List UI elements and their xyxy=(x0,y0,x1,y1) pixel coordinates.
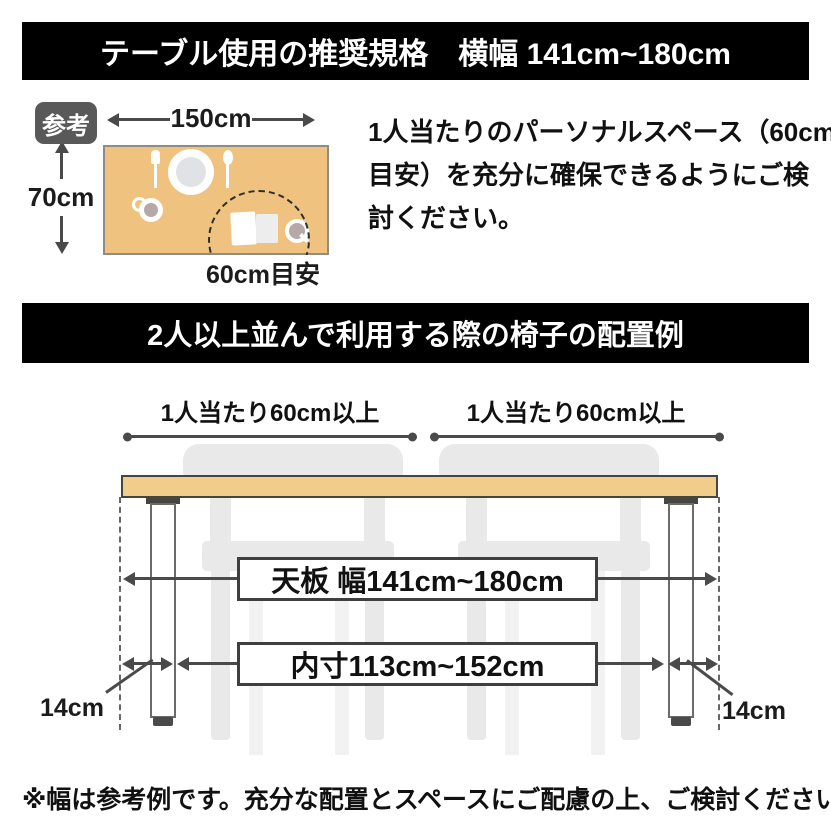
chair-right-back xyxy=(439,444,659,477)
spoon-icon-stem xyxy=(226,163,229,188)
table-edge-dashline-right xyxy=(718,497,720,730)
chair-left-back xyxy=(183,444,403,477)
section2-title: 2人以上並んで利用する際の椅子の配置例 xyxy=(147,312,684,354)
cup-icon-inner xyxy=(144,203,158,217)
inner-width-arrow-left xyxy=(188,662,237,665)
description-line-3: 討ください。 xyxy=(368,198,524,235)
inner-width-arrow-right xyxy=(598,662,653,665)
leg-offset-label-left: 14cm xyxy=(40,694,104,723)
table-edge-dashline-left xyxy=(119,497,121,730)
width-dim-arrow-left xyxy=(118,118,170,121)
personal-space-label: 60cm目安 xyxy=(204,255,322,291)
plate-icon xyxy=(168,149,214,195)
per-person-label-right: 1人当たり60cm以上 xyxy=(433,393,719,428)
chair-left-leg-left xyxy=(211,571,230,740)
table-depth-label: 70cm xyxy=(26,182,96,213)
tabletop-width-arrow-left xyxy=(134,577,237,580)
table-width-label: 150cm xyxy=(168,103,254,134)
chair-right-post-left xyxy=(466,497,487,547)
per-person-dimline-left xyxy=(127,435,413,438)
tabletop-width-box: 天板 幅141cm~180cm xyxy=(237,557,598,601)
leg-offset-label-right: 14cm xyxy=(722,697,786,726)
chair-right-leg-right xyxy=(621,571,640,740)
spec-infographic: テーブル使用の推奨規格 横幅 141cm~180cm 参考 150cm 70cm… xyxy=(0,0,831,831)
chair-left-post-right xyxy=(364,497,385,547)
per-person-label-left: 1人当たり60cm以上 xyxy=(127,393,413,428)
plate-icon-inner xyxy=(176,157,206,187)
chair-right-post-right xyxy=(620,497,641,547)
depth-dim-arrow-down xyxy=(60,216,63,244)
section1-title: テーブル使用の推奨規格 横幅 141cm~180cm xyxy=(100,29,731,73)
tabletop-width-arrow-right xyxy=(598,577,706,580)
table-leg-left xyxy=(150,503,176,718)
per-person-dimline-right xyxy=(434,435,720,438)
table-leg-foot-left xyxy=(153,717,173,726)
cup-icon xyxy=(139,198,163,222)
fork-icon-stem xyxy=(154,162,157,188)
chair-left-post-left xyxy=(210,497,231,547)
depth-dim-arrow-up xyxy=(60,151,63,179)
description-line-1: 1人当たりのパーソナルスペース（60cm xyxy=(368,112,831,149)
reference-badge: 参考 xyxy=(35,102,97,144)
inner-width-box: 内寸113cm~152cm xyxy=(237,642,598,686)
table-leg-right xyxy=(668,503,694,718)
footnote: ※幅は参考例です。充分な配置とスペースにご配慮の上、ご検討ください。 xyxy=(22,780,831,816)
tabletop-side-view xyxy=(121,475,718,498)
table-leg-foot-right xyxy=(671,717,691,726)
section2-title-bar: 2人以上並んで利用する際の椅子の配置例 xyxy=(22,303,809,363)
width-dim-arrow-right xyxy=(252,118,304,121)
description-line-2: 目安）を充分に確保できるようにご検 xyxy=(368,155,809,192)
section1-title-bar: テーブル使用の推奨規格 横幅 141cm~180cm xyxy=(22,22,809,80)
